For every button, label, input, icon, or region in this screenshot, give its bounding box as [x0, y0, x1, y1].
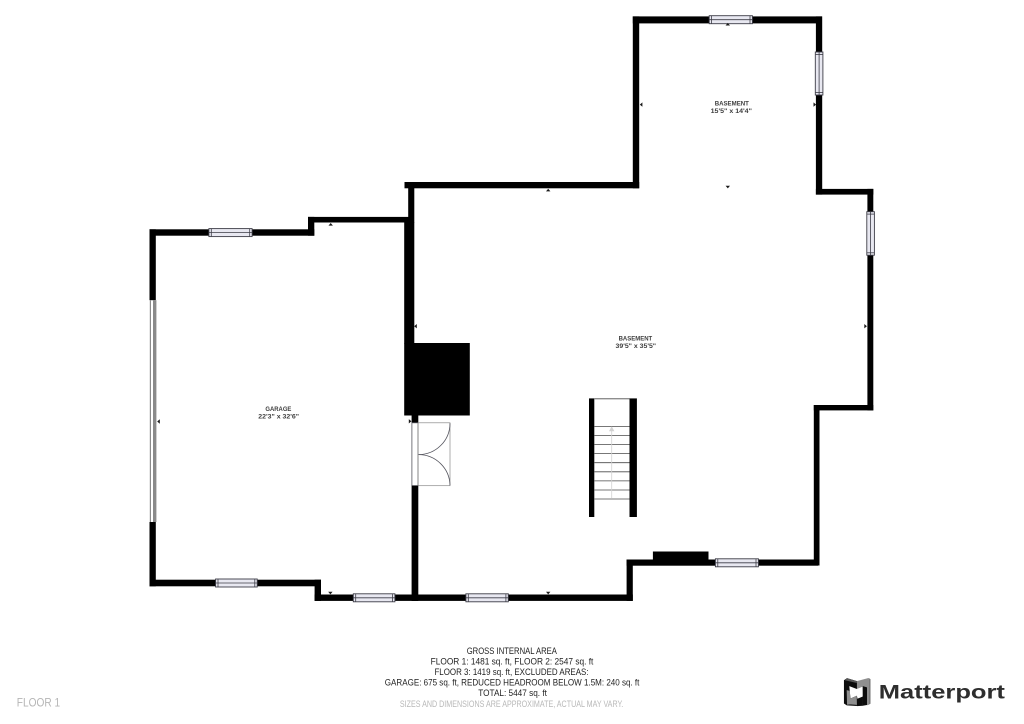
svg-text:Matterport: Matterport	[879, 682, 1006, 704]
svg-text:22'3" x 32'6": 22'3" x 32'6"	[258, 413, 299, 420]
svg-text:FLOOR 1: 1481 sq. ft, FLOOR 2:: FLOOR 1: 1481 sq. ft, FLOOR 2: 2547 sq. …	[431, 655, 594, 666]
svg-text:BASEMENT: BASEMENT	[715, 100, 749, 107]
svg-text:GROSS INTERNAL AREA: GROSS INTERNAL AREA	[467, 645, 558, 656]
svg-text:SIZES AND DIMENSIONS ARE APPRO: SIZES AND DIMENSIONS ARE APPROXIMATE, AC…	[400, 699, 623, 709]
svg-text:BASEMENT: BASEMENT	[619, 336, 653, 343]
svg-text:15'5" x 14'4": 15'5" x 14'4"	[711, 108, 752, 115]
svg-text:FLOOR 3: 1419 sq. ft, EXCLUDED: FLOOR 3: 1419 sq. ft, EXCLUDED AREAS:	[434, 666, 588, 677]
svg-text:39'5" x 35'5": 39'5" x 35'5"	[616, 343, 657, 350]
svg-text:TOTAL: 5447 sq. ft: TOTAL: 5447 sq. ft	[478, 687, 547, 698]
svg-text:GARAGE: GARAGE	[265, 406, 292, 413]
svg-text:FLOOR 1: FLOOR 1	[17, 696, 61, 710]
svg-text:GARAGE: 675 sq. ft, REDUCED HE: GARAGE: 675 sq. ft, REDUCED HEADROOM BEL…	[385, 677, 640, 688]
